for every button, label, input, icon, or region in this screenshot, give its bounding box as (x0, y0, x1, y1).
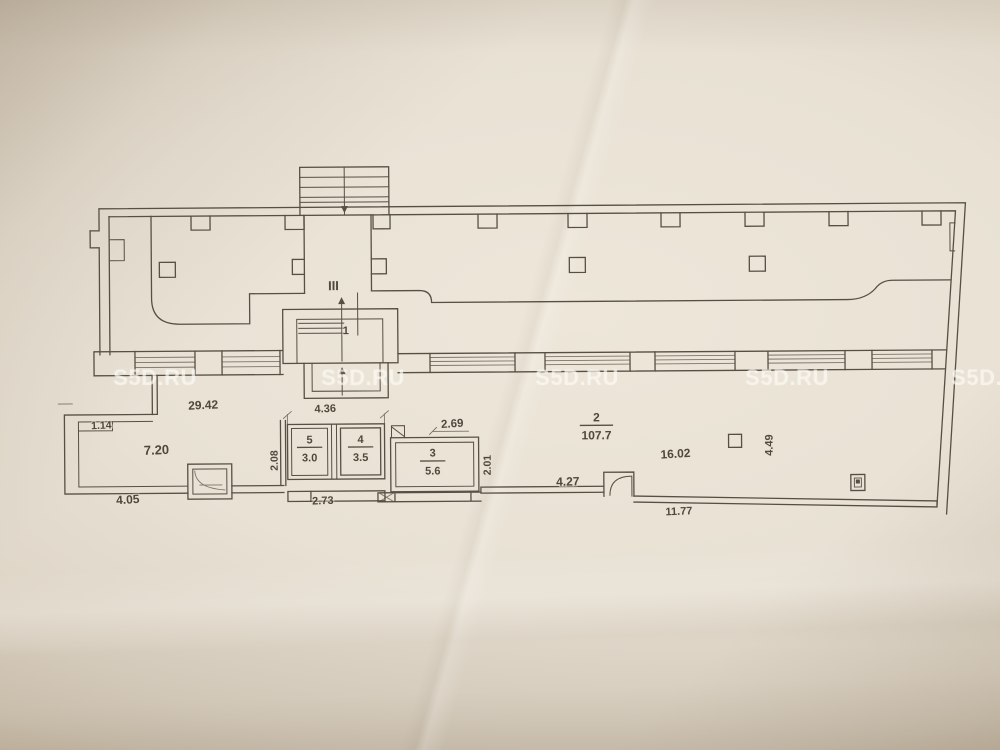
columns (159, 256, 765, 277)
inner-hall-boundary (151, 211, 951, 325)
room-2-area: 107.7 (581, 428, 611, 442)
hall-column (729, 434, 742, 447)
facade-window-band (94, 346, 946, 376)
room-3-area: 5.6 (425, 465, 440, 477)
rooms-4-5-window-band (288, 491, 385, 502)
dim-mid-bottom: 4.27 (556, 474, 580, 489)
porch-arrow-up (339, 367, 346, 374)
dim-right-width: 16.02 (660, 446, 691, 462)
scanned-floor-plan-photo: III 1 2 107.7 3 5.6 4 3.5 5 3.0 29.42 1.… (0, 0, 1000, 750)
dim-bottom-left: 4.05 (116, 492, 140, 507)
room-5-area: 3.0 (302, 452, 317, 464)
dim-top-width: 29.42 (188, 397, 219, 412)
room-2-number: 2 (593, 410, 600, 424)
stairwell-label: III (328, 278, 339, 293)
dim-left-niche: 1.14 (91, 419, 112, 432)
dim-room-left-width: 7.20 (144, 442, 170, 458)
dim-rooms-4-5-width: 4.36 (314, 403, 336, 416)
dim-room-3-depth: 2.01 (482, 455, 494, 476)
entrance-porch (304, 363, 388, 399)
dim-corridor-depth: 2.08 (269, 450, 281, 471)
dim-bottom-right: 11.77 (665, 505, 692, 518)
stair-arrow-down (341, 206, 348, 213)
door-swing-arc (610, 476, 632, 496)
dim-rooms-4-5-bottom: 2.73 (312, 495, 334, 508)
room-labels: III 1 2 107.7 3 5.6 4 3.5 5 3.0 (301, 276, 612, 478)
marked-column (851, 474, 865, 490)
room-3-number: 3 (430, 447, 436, 459)
dim-room-3-width: 2.69 (441, 418, 464, 431)
floor-plan-svg: III 1 2 107.7 3 5.6 4 3.5 5 3.0 29.42 1.… (0, 0, 1000, 750)
stair-top-entry (300, 167, 389, 216)
stair-arrow-up (338, 297, 345, 304)
lower-strip-walls (58, 375, 286, 495)
dim-right-depth: 4.49 (764, 434, 776, 456)
room-3-window-band (378, 492, 481, 502)
vestibule-room-1 (283, 293, 398, 364)
room-label-fraction-bars (297, 425, 612, 462)
room-5-number: 5 (306, 434, 312, 446)
entrance-steps-left (188, 464, 232, 499)
room-1-number: 1 (343, 325, 349, 337)
room-4-area: 3.5 (353, 452, 368, 464)
room-4-number: 4 (357, 434, 364, 446)
hall-bottom-walls (481, 470, 937, 510)
